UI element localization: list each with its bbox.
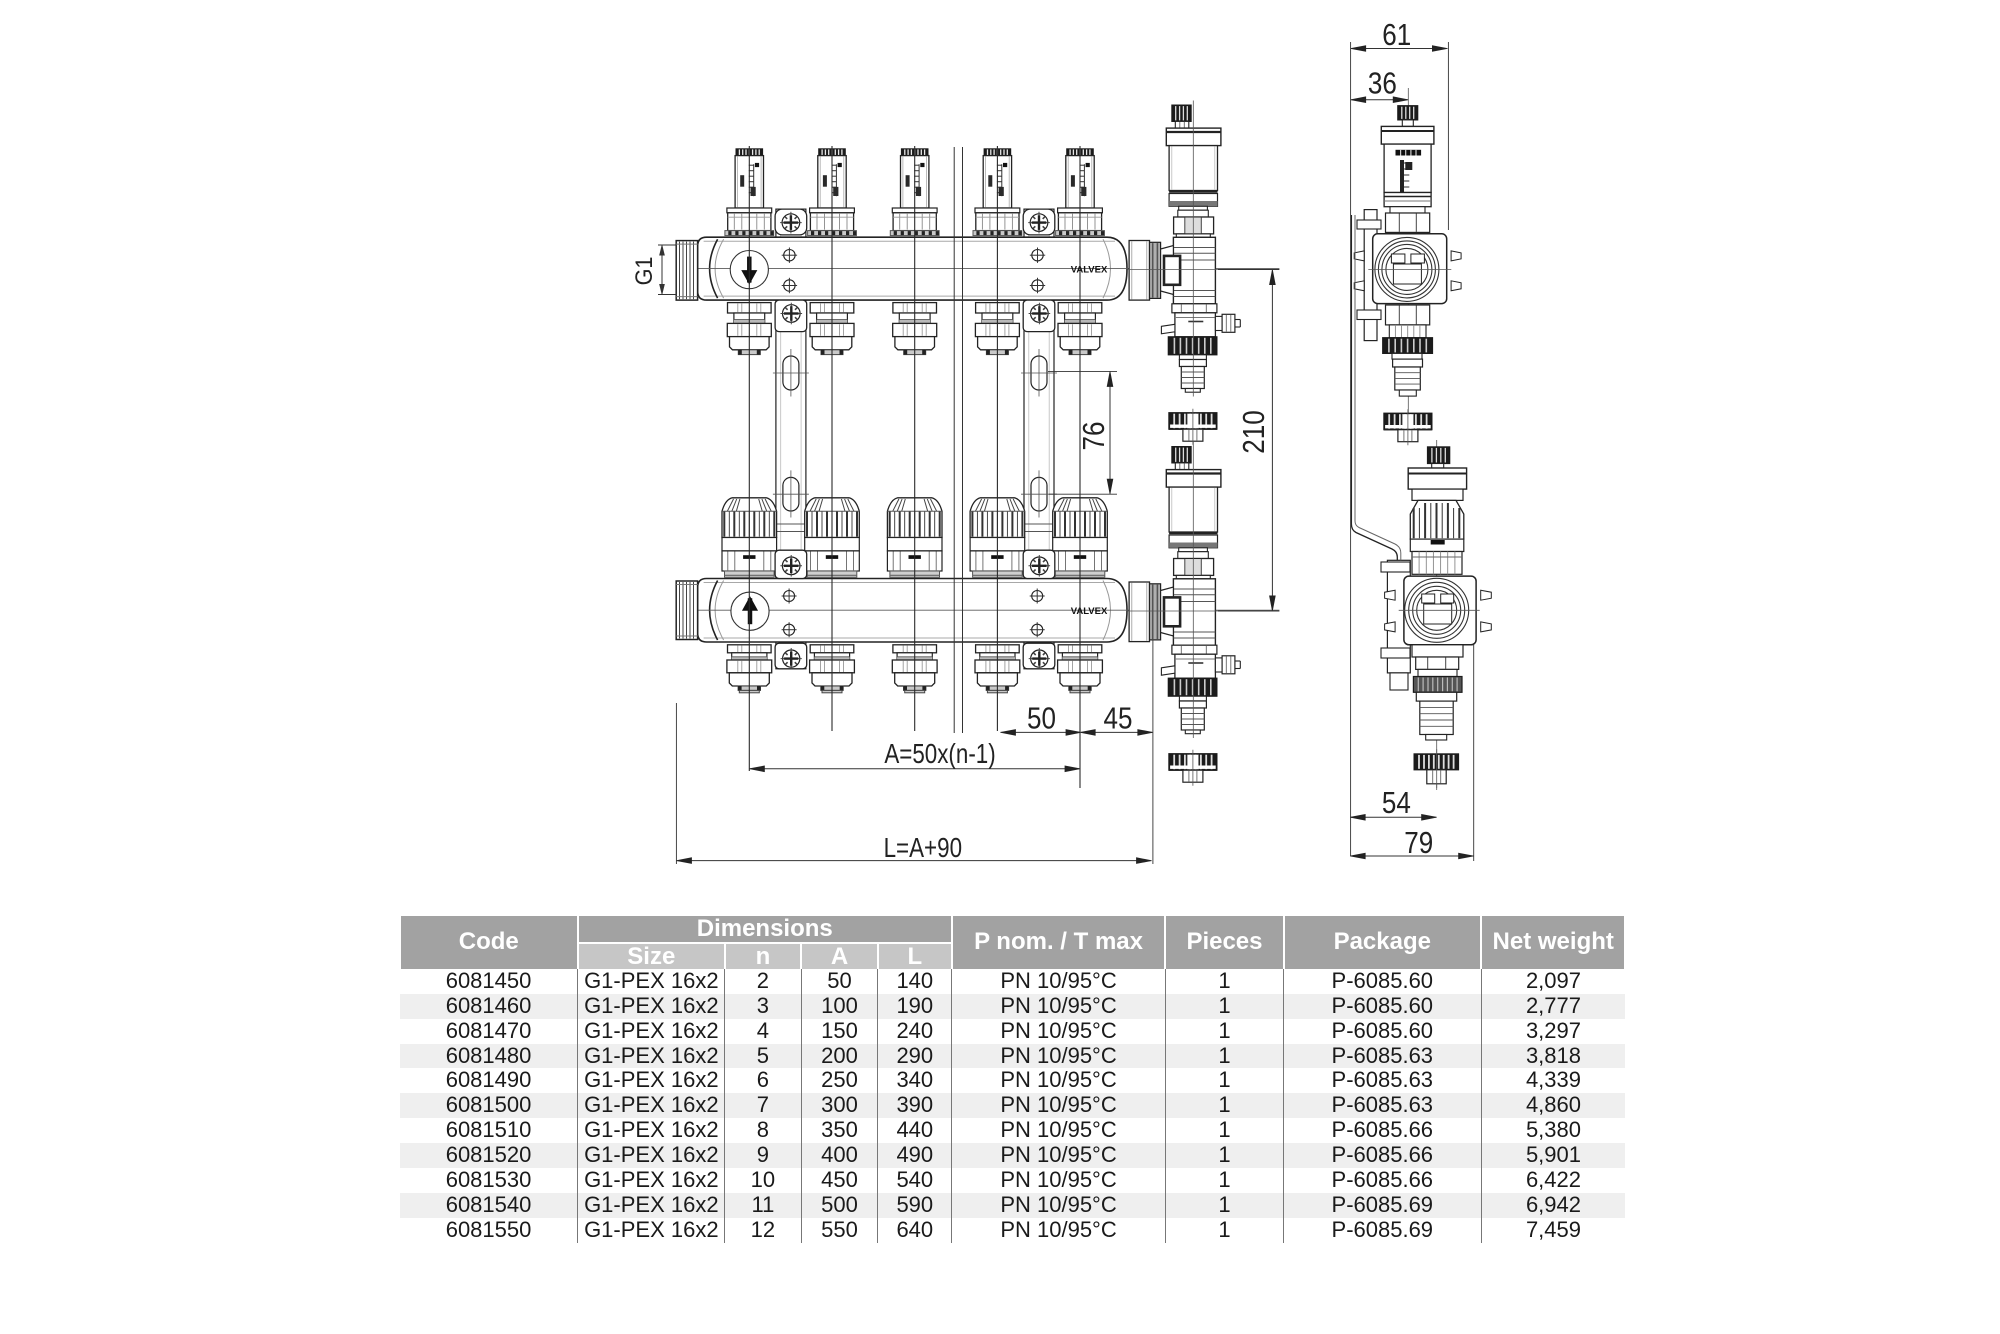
- svg-text:76: 76: [1077, 422, 1112, 451]
- svg-text:VALVEX: VALVEX: [1071, 606, 1108, 617]
- svg-text:50: 50: [1027, 701, 1056, 736]
- svg-text:54: 54: [1382, 786, 1411, 821]
- svg-text:L=A+90: L=A+90: [884, 833, 962, 864]
- svg-text:210: 210: [1237, 410, 1272, 453]
- svg-text:G1: G1: [630, 257, 657, 286]
- svg-text:36: 36: [1368, 66, 1397, 101]
- svg-text:61: 61: [1382, 18, 1411, 53]
- svg-text:VALVEX: VALVEX: [1071, 265, 1108, 276]
- svg-text:45: 45: [1104, 701, 1133, 736]
- svg-text:79: 79: [1404, 826, 1433, 861]
- svg-text:A=50x(n-1): A=50x(n-1): [884, 739, 995, 770]
